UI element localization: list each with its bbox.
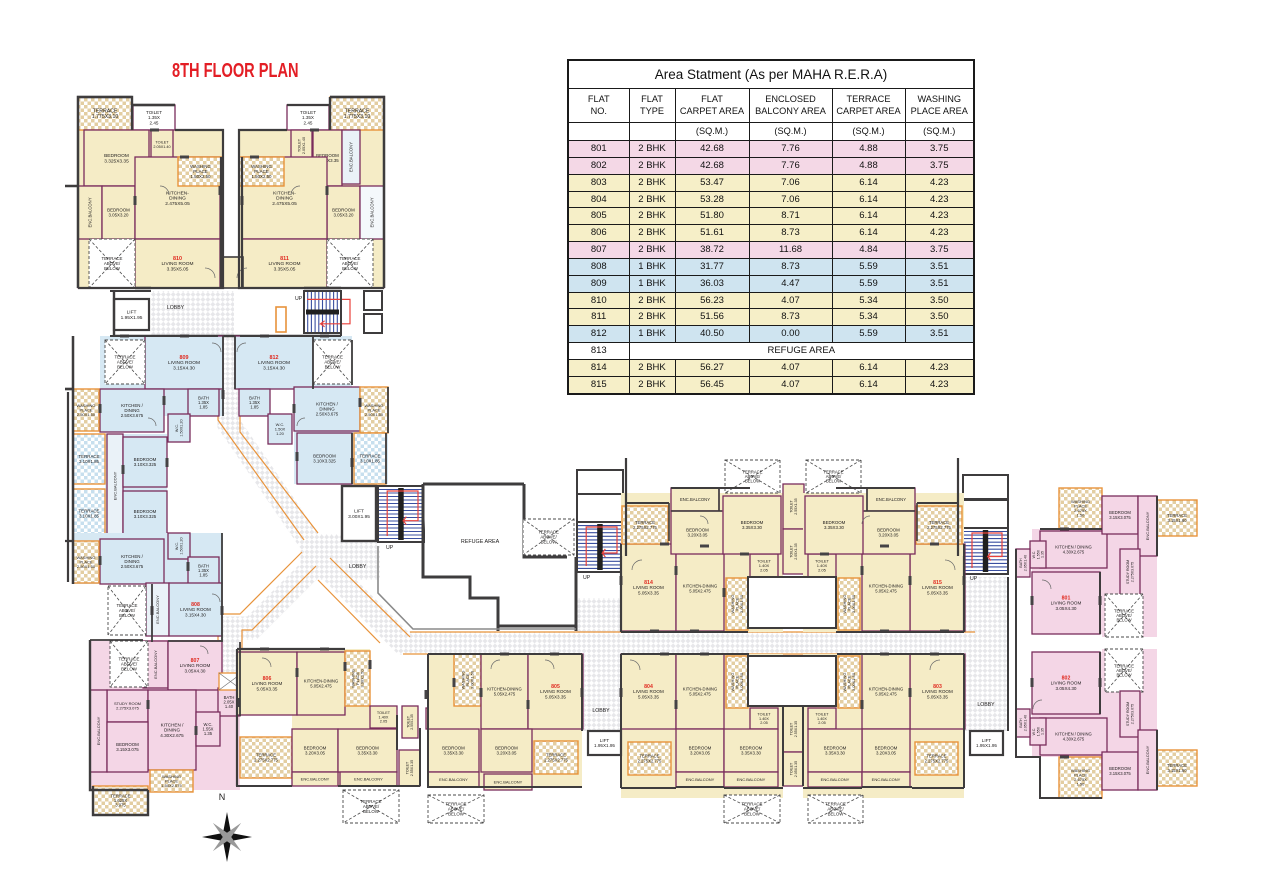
svg-text:2.05: 2.05	[380, 720, 387, 724]
svg-text:2.45: 2.45	[304, 120, 313, 125]
svg-text:2.05: 2.05	[818, 567, 827, 572]
svg-text:2.50X3.675: 2.50X3.675	[121, 564, 144, 569]
svg-text:5.05X2.475: 5.05X2.475	[875, 691, 897, 696]
svg-text:2.05X1.35: 2.05X1.35	[794, 761, 798, 777]
svg-text:ENC.BALCONY: ENC.BALCONY	[494, 779, 523, 784]
svg-text:2.275X2.775: 2.275X2.775	[925, 758, 949, 763]
svg-text:LIVING ROOM: LIVING ROOM	[168, 360, 200, 366]
svg-text:3.20X3.05: 3.20X3.05	[496, 751, 517, 756]
svg-text:3.00X1.50: 3.00X1.50	[739, 594, 744, 613]
svg-text:2.55X1.35: 2.55X1.35	[410, 714, 414, 730]
svg-text:2.05X1.40: 2.05X1.40	[1023, 715, 1027, 731]
svg-text:2.05: 2.05	[760, 721, 767, 725]
svg-text:DINING: DINING	[169, 196, 186, 202]
svg-text:LIVING ROOM: LIVING ROOM	[258, 360, 290, 366]
svg-text:DINING: DINING	[276, 196, 293, 202]
svg-text:KITCHEN-: KITCHEN-	[273, 190, 296, 196]
svg-text:3.15X4.30: 3.15X4.30	[173, 366, 195, 372]
svg-text:KITCHEN-: KITCHEN-	[166, 190, 189, 196]
svg-text:1.50X2.50: 1.50X2.50	[190, 174, 211, 179]
svg-text:ENC.BALCONY: ENC.BALCONY	[349, 142, 354, 172]
svg-text:ENC.BALCONY: ENC.BALCONY	[439, 777, 468, 782]
svg-text:BELOW: BELOW	[342, 266, 359, 271]
svg-text:2.45: 2.45	[150, 120, 159, 125]
svg-text:1.35: 1.35	[1040, 728, 1044, 735]
svg-text:BELOW: BELOW	[121, 667, 138, 672]
svg-text:3.05X4.30: 3.05X4.30	[185, 668, 206, 673]
svg-text:UP: UP	[583, 575, 591, 581]
svg-text:1.50X2.50: 1.50X2.50	[251, 174, 272, 179]
svg-text:BEDROOM: BEDROOM	[104, 153, 129, 159]
svg-text:2.275X2.775: 2.275X2.775	[638, 758, 662, 763]
svg-text:ENC.BALCONY: ENC.BALCONY	[872, 777, 901, 782]
svg-text:5.05X3.35: 5.05X3.35	[638, 590, 659, 595]
svg-text:2.475X5.05: 2.475X5.05	[165, 201, 190, 207]
svg-text:BELOW: BELOW	[826, 479, 841, 484]
svg-text:3.35X3.30: 3.35X3.30	[824, 525, 845, 530]
svg-text:2.05X1.40: 2.05X1.40	[302, 137, 306, 154]
svg-text:812: 812	[270, 355, 279, 361]
svg-text:5.05X2.475: 5.05X2.475	[875, 588, 897, 593]
svg-text:4.30X2.675: 4.30X2.675	[1063, 549, 1085, 554]
svg-text:1.85: 1.85	[199, 405, 208, 410]
svg-text:1.50X1.20: 1.50X1.20	[180, 419, 184, 436]
svg-text:2.275X2.775: 2.275X2.775	[633, 525, 657, 530]
svg-text:2.475X5.05: 2.475X5.05	[272, 201, 297, 207]
svg-text:2.50X3.675: 2.50X3.675	[121, 413, 144, 418]
svg-text:ENC.BALCONY: ENC.BALCONY	[155, 595, 160, 624]
svg-text:BELOW: BELOW	[828, 812, 845, 817]
svg-text:LIVING ROOM: LIVING ROOM	[162, 261, 194, 267]
svg-text:3.35X3.30: 3.35X3.30	[443, 751, 464, 756]
svg-text:1.50: 1.50	[1077, 782, 1086, 787]
svg-text:LIVING ROOM: LIVING ROOM	[269, 261, 301, 267]
svg-text:2.05: 2.05	[760, 567, 769, 572]
svg-text:5.05X3.35: 5.05X3.35	[927, 694, 948, 699]
svg-text:2.275X2.775: 2.275X2.775	[544, 757, 568, 762]
svg-text:REFUGE AREA: REFUGE AREA	[461, 539, 500, 545]
svg-text:1.85: 1.85	[199, 573, 208, 578]
svg-text:3.10X1.85: 3.10X1.85	[79, 459, 100, 464]
svg-text:UP: UP	[295, 296, 303, 302]
svg-text:1.775X3.10: 1.775X3.10	[344, 114, 371, 120]
svg-text:UP: UP	[386, 545, 394, 551]
svg-text:3.10X3.325: 3.10X3.325	[134, 514, 157, 519]
svg-text:3.15X1.60: 3.15X1.60	[1167, 768, 1187, 773]
svg-text:810: 810	[173, 256, 182, 262]
svg-text:5.05X2.475: 5.05X2.475	[310, 683, 332, 688]
svg-text:5.05X3.35: 5.05X3.35	[545, 694, 566, 699]
svg-text:3.15X3.075: 3.15X3.075	[1109, 515, 1131, 520]
svg-text:3.00X1.50: 3.00X1.50	[851, 594, 856, 613]
svg-text:BELOW: BELOW	[325, 365, 342, 370]
svg-text:LOBBY: LOBBY	[977, 702, 995, 708]
svg-text:3.10X1.85: 3.10X1.85	[79, 514, 100, 519]
svg-text:3.10X1.85: 3.10X1.85	[360, 459, 381, 464]
svg-text:UP: UP	[970, 576, 978, 582]
svg-text:3.05X3.20: 3.05X3.20	[333, 213, 354, 218]
svg-text:5.05X2.475: 5.05X2.475	[494, 691, 516, 696]
svg-text:3.00X1.50: 3.00X1.50	[739, 672, 744, 691]
svg-text:5.05X3.35: 5.05X3.35	[927, 590, 948, 595]
svg-text:3.35X3.30: 3.35X3.30	[742, 525, 763, 530]
svg-text:3.20X3.05: 3.20X3.05	[687, 533, 708, 538]
svg-text:1.20: 1.20	[276, 431, 285, 436]
svg-text:BELOW: BELOW	[104, 266, 121, 271]
svg-text:1.35: 1.35	[1040, 551, 1044, 558]
svg-text:2.275X2.775: 2.275X2.775	[254, 757, 278, 762]
svg-text:3.15X3.075: 3.15X3.075	[116, 747, 139, 752]
svg-text:ENC.BALCONY: ENC.BALCONY	[88, 197, 93, 227]
svg-text:3.35X5.05: 3.35X5.05	[167, 267, 189, 273]
svg-text:ENC.BALCONY: ENC.BALCONY	[1145, 511, 1150, 540]
svg-text:ENC.BALCONY: ENC.BALCONY	[876, 497, 906, 502]
svg-text:3.35X5.05: 3.35X5.05	[274, 267, 296, 273]
svg-text:BELOW: BELOW	[745, 479, 760, 484]
svg-text:ENC.BALCONY: ENC.BALCONY	[153, 650, 158, 679]
svg-text:809: 809	[180, 355, 189, 361]
svg-text:N: N	[219, 792, 226, 802]
svg-text:1.50X2.075: 1.50X2.075	[161, 783, 182, 788]
svg-text:2.05X1.40: 2.05X1.40	[153, 145, 170, 149]
svg-text:3.15X4.30: 3.15X4.30	[263, 366, 285, 372]
svg-text:5.05X3.35: 5.05X3.35	[638, 694, 659, 699]
svg-text:2.275X3.075: 2.275X3.075	[1130, 562, 1134, 582]
svg-text:ENC.BALCONY: ENC.BALCONY	[96, 716, 101, 745]
svg-text:811: 811	[280, 256, 289, 262]
svg-text:LOBBY: LOBBY	[592, 708, 610, 714]
svg-text:1.85: 1.85	[250, 405, 259, 410]
svg-text:3.00X1.50: 3.00X1.50	[851, 672, 856, 691]
svg-text:3.10X3.325: 3.10X3.325	[134, 462, 157, 467]
svg-text:2.55X1.35: 2.55X1.35	[410, 760, 414, 776]
svg-text:3.325X3.35: 3.325X3.35	[104, 158, 129, 164]
svg-text:3.20X3.05: 3.20X3.05	[690, 751, 711, 756]
svg-text:3.05X4.30: 3.05X4.30	[1056, 606, 1077, 611]
svg-text:2.275X3.075: 2.275X3.075	[1130, 704, 1134, 724]
svg-text:2.50X3.675: 2.50X3.675	[316, 412, 339, 417]
svg-text:3.00X1.50: 3.00X1.50	[469, 670, 474, 689]
svg-text:ENC.BALCONY: ENC.BALCONY	[680, 497, 710, 502]
svg-text:BELOW: BELOW	[1116, 618, 1131, 623]
svg-text:ENC.BALCONY: ENC.BALCONY	[1145, 745, 1150, 774]
svg-text:ENC.BALCONY: ENC.BALCONY	[821, 777, 850, 782]
svg-text:BELOW: BELOW	[117, 365, 134, 370]
svg-text:ENC.BALCONY: ENC.BALCONY	[112, 471, 117, 500]
svg-text:3.20X3.05: 3.20X3.05	[878, 533, 899, 538]
svg-text:1.35: 1.35	[204, 731, 213, 736]
svg-text:2.05X1.35: 2.05X1.35	[794, 543, 798, 559]
svg-text:5.05X2.475: 5.05X2.475	[689, 588, 711, 593]
svg-text:ENC.BALCONY: ENC.BALCONY	[686, 777, 715, 782]
svg-text:1.40: 1.40	[225, 704, 234, 709]
svg-text:2.05: 2.05	[818, 721, 825, 725]
svg-text:3.00X1.95: 3.00X1.95	[348, 514, 370, 520]
svg-text:3.00X1.50: 3.00X1.50	[359, 669, 364, 688]
svg-text:1.95X1.95: 1.95X1.95	[594, 743, 615, 748]
svg-text:2.50X1.50: 2.50X1.50	[365, 412, 384, 417]
svg-text:1.50X1.20: 1.50X1.20	[180, 537, 184, 554]
svg-text:2.05X1.40: 2.05X1.40	[1023, 555, 1027, 571]
svg-text:5.05X3.35: 5.05X3.35	[257, 686, 278, 691]
svg-text:2.275X2.775: 2.275X2.775	[927, 525, 951, 530]
svg-text:LIFT: LIFT	[354, 509, 364, 515]
svg-text:3.35X3.30: 3.35X3.30	[357, 751, 378, 756]
svg-text:BELOW: BELOW	[1116, 673, 1131, 678]
svg-text:1.50: 1.50	[1077, 513, 1086, 518]
svg-text:ENC.BALCONY: ENC.BALCONY	[301, 776, 330, 781]
svg-text:BELOW: BELOW	[119, 613, 136, 618]
svg-text:BELOW: BELOW	[448, 812, 465, 817]
svg-text:2.55X1.35: 2.55X1.35	[794, 498, 798, 514]
svg-text:3.35X3.30: 3.35X3.30	[741, 751, 762, 756]
svg-text:2.50X1.50: 2.50X1.50	[77, 564, 96, 569]
svg-text:3.05X4.30: 3.05X4.30	[1056, 686, 1077, 691]
svg-text:ENC.BALCONY: ENC.BALCONY	[737, 777, 766, 782]
svg-text:1.95X1.95: 1.95X1.95	[121, 315, 143, 321]
svg-text:2.55X1.35: 2.55X1.35	[794, 721, 798, 737]
svg-text:3.15X3.075: 3.15X3.075	[1109, 771, 1131, 776]
svg-text:BELOW: BELOW	[363, 809, 380, 814]
svg-text:3.05X3.20: 3.05X3.20	[108, 213, 129, 218]
svg-text:ENC.BALCONY: ENC.BALCONY	[370, 197, 375, 227]
svg-text:BELOW: BELOW	[541, 540, 558, 545]
svg-text:3.15X4.30: 3.15X4.30	[185, 612, 206, 617]
svg-text:3.075: 3.075	[115, 803, 126, 808]
svg-text:4.30X2.675: 4.30X2.675	[1063, 736, 1085, 741]
svg-text:3.20X3.05: 3.20X3.05	[876, 751, 897, 756]
svg-text:3.15X1.60: 3.15X1.60	[1167, 518, 1187, 523]
svg-text:2.50X1.50: 2.50X1.50	[77, 412, 96, 417]
svg-text:2.275X3.075: 2.275X3.075	[116, 706, 139, 711]
svg-text:LIFT: LIFT	[127, 310, 137, 316]
svg-text:LOBBY: LOBBY	[167, 305, 185, 311]
svg-text:3.20X3.05: 3.20X3.05	[305, 751, 326, 756]
svg-text:1.775X3.10: 1.775X3.10	[92, 114, 119, 120]
svg-text:3.10X3.325: 3.10X3.325	[313, 459, 336, 464]
svg-text:BELOW: BELOW	[744, 812, 761, 817]
svg-text:5.05X2.475: 5.05X2.475	[689, 691, 711, 696]
svg-text:1.95X1.95: 1.95X1.95	[976, 743, 997, 748]
svg-text:ENC.BALCONY: ENC.BALCONY	[354, 776, 383, 781]
svg-text:LOBBY: LOBBY	[349, 564, 367, 570]
svg-text:3.35X3.30: 3.35X3.30	[825, 751, 846, 756]
svg-text:4.30X2.675: 4.30X2.675	[160, 733, 184, 738]
